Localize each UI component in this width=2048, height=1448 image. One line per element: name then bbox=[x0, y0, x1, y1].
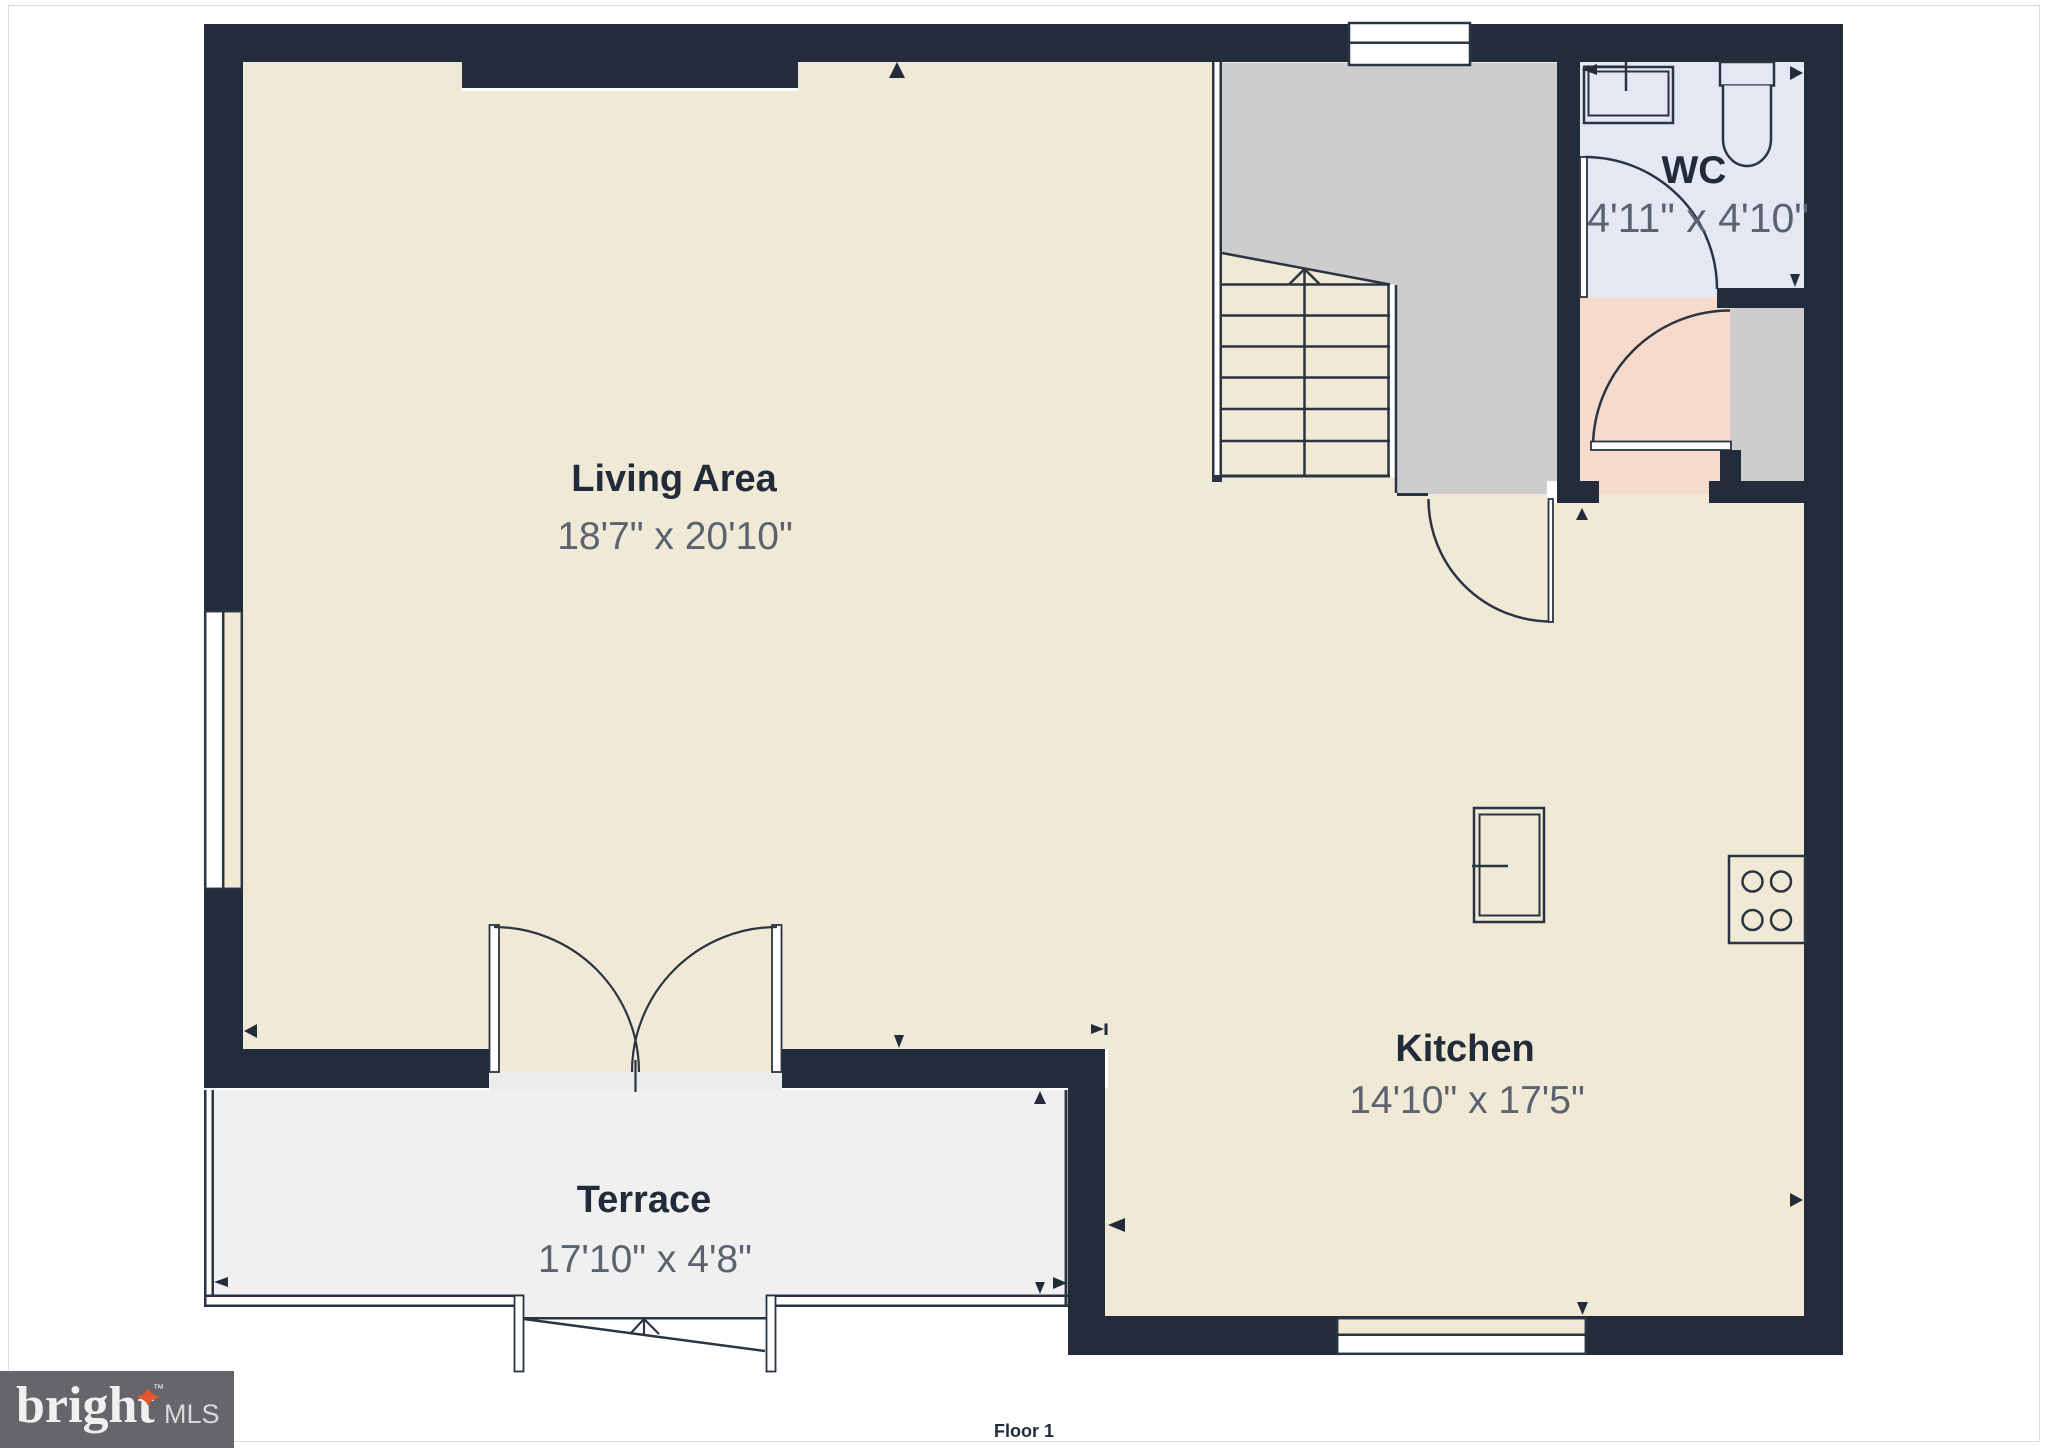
svg-text:Terrace: Terrace bbox=[577, 1179, 712, 1221]
svg-text:14'10" x 17'5": 14'10" x 17'5" bbox=[1349, 1079, 1585, 1122]
svg-text:WC: WC bbox=[1662, 149, 1727, 192]
svg-text:bright: bright bbox=[16, 1377, 155, 1434]
svg-text:Kitchen: Kitchen bbox=[1395, 1028, 1534, 1070]
svg-text:MLS: MLS bbox=[164, 1399, 220, 1429]
svg-text:Living Area: Living Area bbox=[571, 458, 777, 500]
svg-text:17'10" x 4'8": 17'10" x 4'8" bbox=[538, 1238, 752, 1281]
svg-text:™: ™ bbox=[153, 1383, 164, 1395]
svg-text:Floor 1: Floor 1 bbox=[994, 1421, 1054, 1441]
svg-text:4'11" x 4'10": 4'11" x 4'10" bbox=[1587, 195, 1809, 241]
svg-text:18'7" x 20'10": 18'7" x 20'10" bbox=[557, 515, 793, 558]
